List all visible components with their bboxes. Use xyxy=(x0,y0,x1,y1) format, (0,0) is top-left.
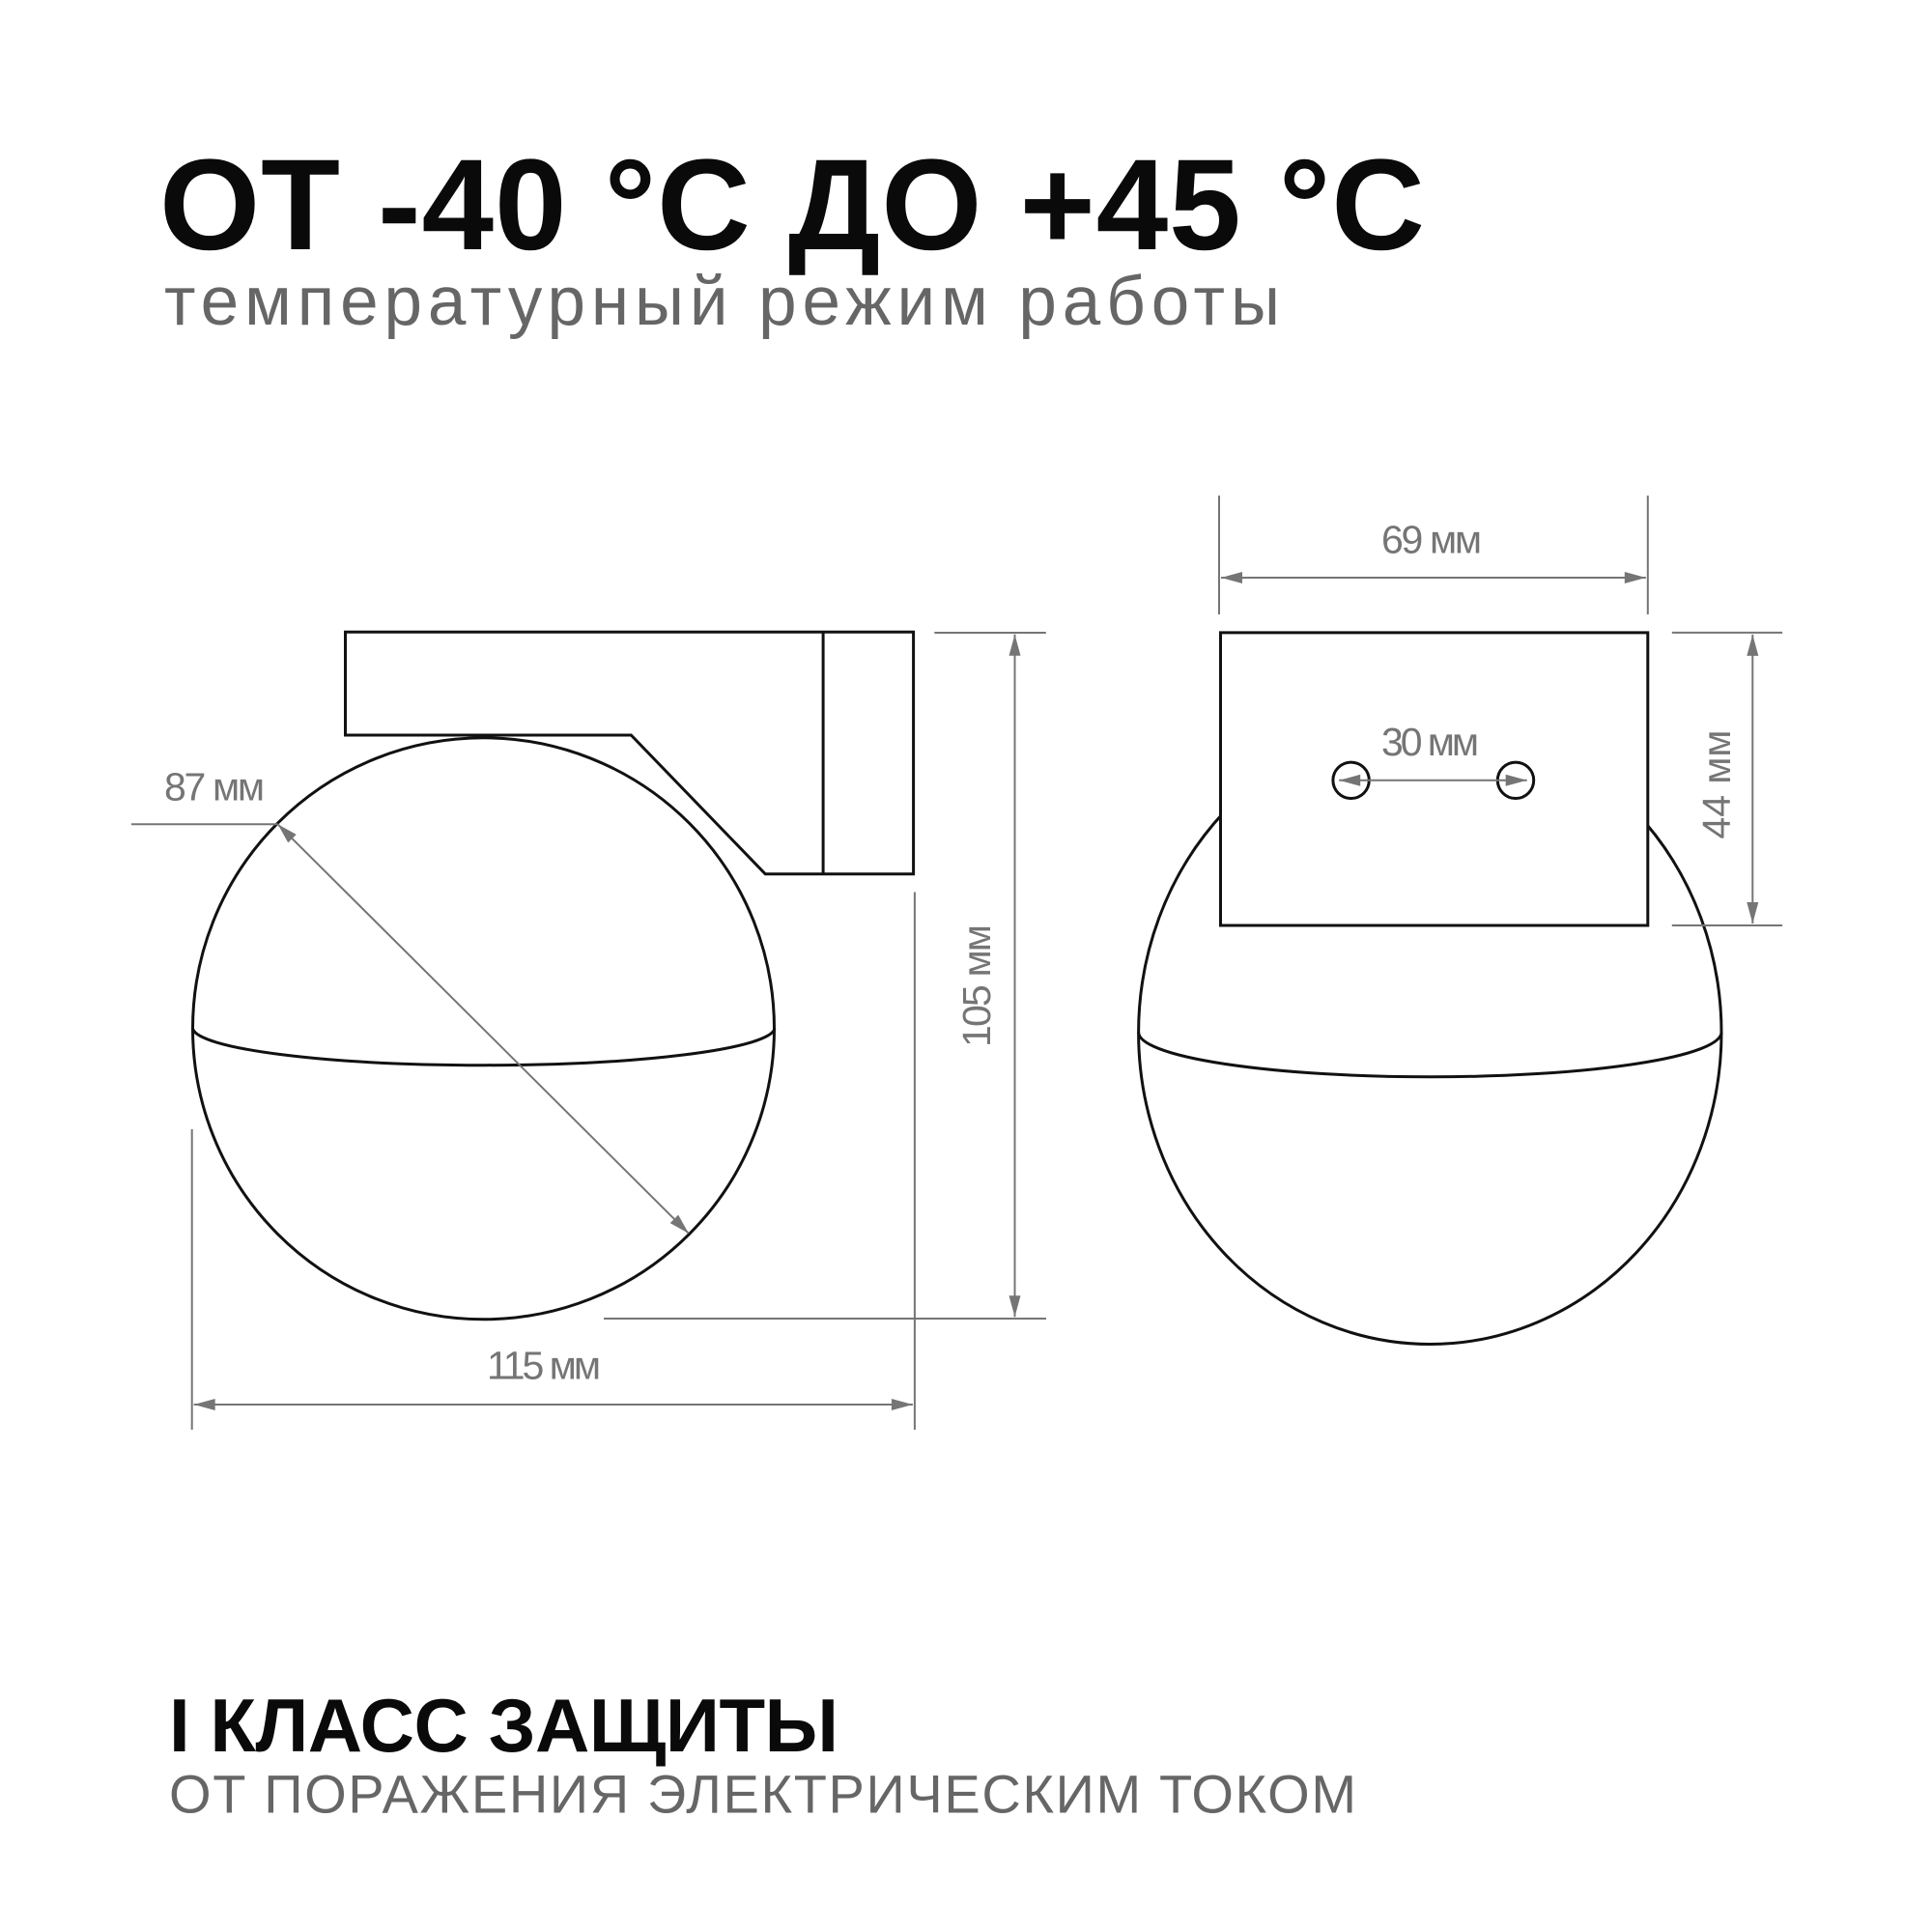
svg-text:44 мм: 44 мм xyxy=(1694,730,1739,839)
svg-text:ОТ -40 °С ДО +45 °С: ОТ -40 °С ДО +45 °С xyxy=(159,133,1425,277)
svg-text:87 мм: 87 мм xyxy=(164,765,265,810)
svg-text:ОТ ПОРАЖЕНИЯ ЭЛЕКТРИЧЕСКИМ ТОК: ОТ ПОРАЖЕНИЯ ЭЛЕКТРИЧЕСКИМ ТОКОМ xyxy=(169,1764,1356,1825)
svg-text:115 мм: 115 мм xyxy=(487,1343,601,1387)
svg-text:105 мм: 105 мм xyxy=(954,924,999,1047)
svg-text:температурный режим работы: температурный режим работы xyxy=(164,264,1280,340)
svg-text:69 мм: 69 мм xyxy=(1381,517,1482,561)
svg-text:I КЛАСС ЗАЩИТЫ: I КЛАСС ЗАЩИТЫ xyxy=(169,1683,838,1768)
svg-text:30 мм: 30 мм xyxy=(1381,720,1479,764)
